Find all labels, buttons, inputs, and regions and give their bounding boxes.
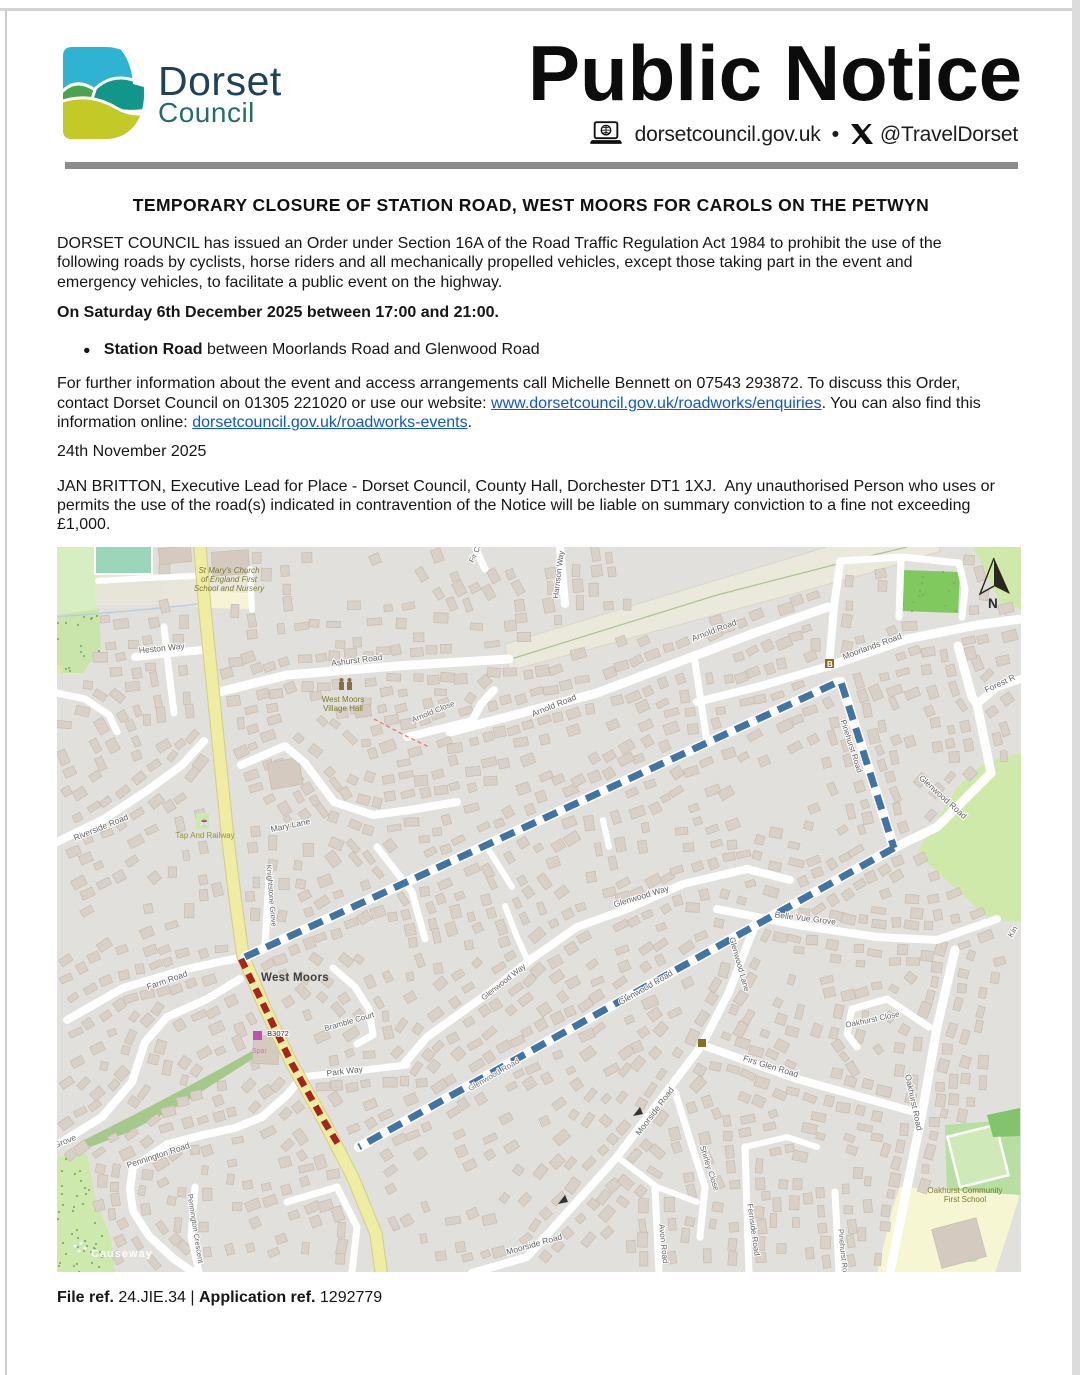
svg-text:St Mary's Churchof England Fir: St Mary's Churchof England FirstSchool a… — [194, 566, 265, 593]
svg-text:B3072: B3072 — [267, 1029, 289, 1038]
svg-text:☕: ☕ — [199, 816, 210, 827]
svg-text:B: B — [827, 660, 833, 669]
svg-text:West Moors: West Moors — [261, 972, 329, 984]
svg-text:N: N — [988, 596, 998, 611]
svg-text:Causeway: Causeway — [91, 1248, 153, 1260]
svg-text:West MoorsVillage Hall: West MoorsVillage Hall — [322, 695, 365, 713]
svg-text:Spar: Spar — [252, 1048, 267, 1055]
svg-text:Tap And Railway: Tap And Railway — [175, 831, 234, 840]
